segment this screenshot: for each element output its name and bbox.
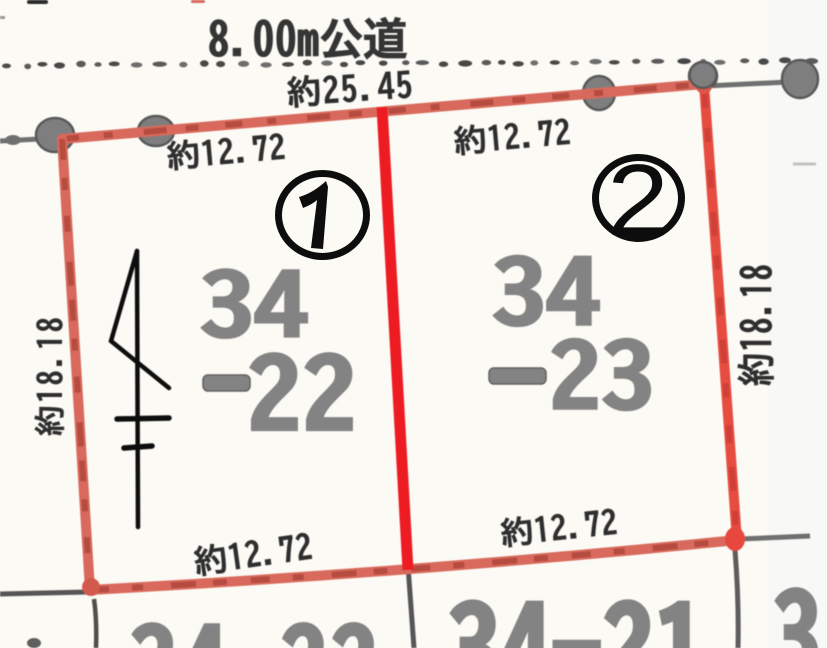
svg-text:2: 2 [607,145,669,257]
